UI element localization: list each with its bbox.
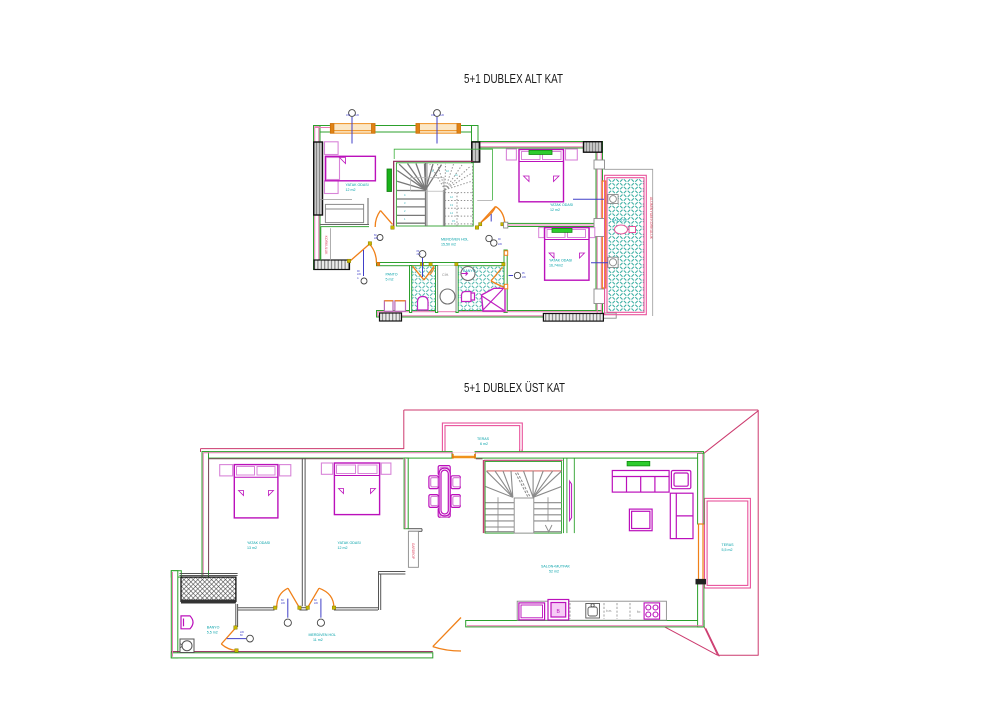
svg-text:160: 160: [431, 114, 436, 117]
svg-text:MERDİVEN HOL: MERDİVEN HOL: [441, 237, 468, 242]
svg-text:220: 220: [417, 253, 422, 256]
svg-text:b.m.: b.m.: [606, 609, 612, 613]
svg-text:12 m2: 12 m2: [338, 546, 348, 550]
svg-text:5,5 m2: 5,5 m2: [207, 631, 218, 635]
svg-text:160: 160: [346, 114, 351, 117]
svg-text:220: 220: [357, 273, 362, 276]
svg-text:16,74m2: 16,74m2: [549, 264, 563, 268]
svg-text:6 m2: 6 m2: [480, 442, 488, 446]
svg-text:BALKON: BALKON: [612, 219, 627, 223]
svg-text:YATAK ODASI: YATAK ODASI: [549, 259, 572, 263]
svg-text:13 m2: 13 m2: [247, 546, 257, 550]
svg-text:SALON+MUTFAK: SALON+MUTFAK: [541, 565, 570, 569]
svg-text:MERDİVEN HOL: MERDİVEN HOL: [309, 632, 336, 637]
svg-text:YATAK ODASI: YATAK ODASI: [247, 541, 270, 545]
svg-text:5+1 DUBLEX ALT KAT: 5+1 DUBLEX ALT KAT: [464, 71, 563, 86]
svg-text:BANYO: BANYO: [463, 269, 476, 273]
svg-text:120: 120: [355, 114, 360, 117]
svg-text:YATAK ODASI: YATAK ODASI: [346, 183, 369, 187]
svg-text:KORKULUK: KORKULUK: [324, 236, 328, 255]
svg-text:5,5 m2: 5,5 m2: [722, 548, 733, 552]
svg-text:TERAS: TERAS: [722, 543, 735, 547]
svg-text:YATAK ODASI: YATAK ODASI: [338, 541, 361, 545]
svg-text:12 m2: 12 m2: [346, 188, 356, 192]
svg-text:fır.: fır.: [637, 609, 641, 614]
svg-text:11 m2: 11 m2: [313, 638, 323, 642]
svg-text:220: 220: [498, 243, 503, 246]
svg-text:120: 120: [440, 114, 445, 117]
svg-text:ALÜMİNYUM KORKULUK: ALÜMİNYUM KORKULUK: [649, 197, 654, 240]
svg-text:CİH.: CİH.: [442, 272, 449, 277]
svg-text:TERAS: TERAS: [477, 437, 490, 441]
svg-text:12 m2: 12 m2: [550, 208, 560, 212]
svg-text:220: 220: [374, 237, 379, 240]
svg-text:YATAK ODASI: YATAK ODASI: [550, 203, 573, 207]
svg-text:PANTO: PANTO: [386, 273, 398, 277]
svg-text:15,50 m2: 15,50 m2: [441, 243, 456, 247]
svg-text:220: 220: [240, 631, 245, 634]
svg-text:GARDROP: GARDROP: [411, 543, 415, 559]
svg-text:BANYO: BANYO: [207, 626, 220, 630]
svg-text:220: 220: [281, 602, 286, 605]
svg-text:220: 220: [522, 276, 527, 279]
svg-text:220: 220: [314, 602, 319, 605]
svg-text:52 m2: 52 m2: [549, 570, 559, 574]
svg-text:5+1 DUBLEX ÜST KAT: 5+1 DUBLEX ÜST KAT: [464, 380, 565, 395]
svg-text:5 m2: 5 m2: [386, 278, 394, 282]
